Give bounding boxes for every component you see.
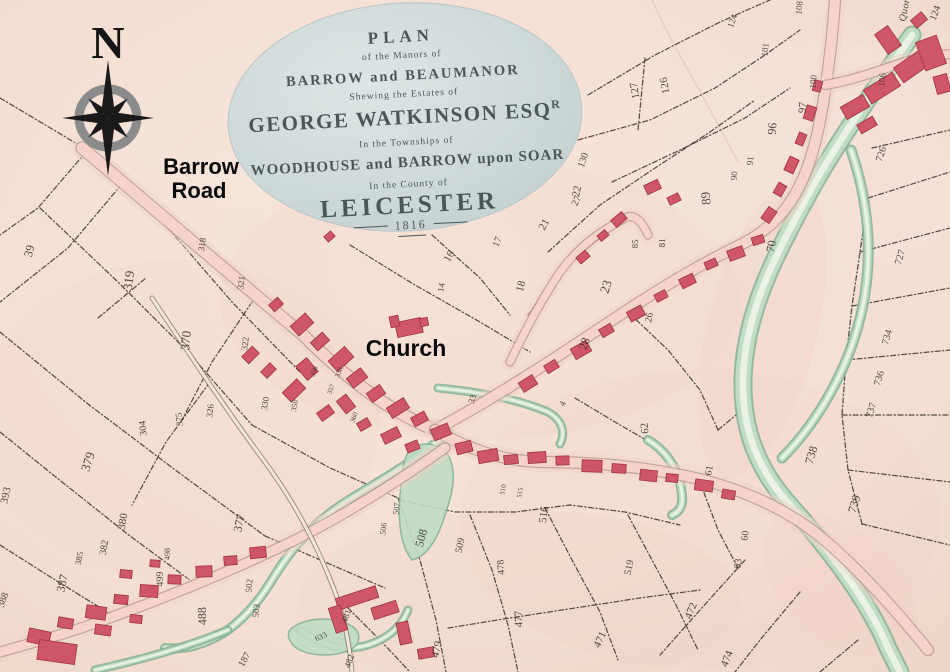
parcel-number: 506 xyxy=(378,522,388,535)
owner-suffix: R xyxy=(551,97,562,112)
building xyxy=(150,560,160,568)
building xyxy=(419,317,428,326)
building xyxy=(85,605,107,621)
building xyxy=(130,614,143,623)
parcel-number: 89 xyxy=(697,191,713,205)
parcel-number: 81 xyxy=(657,238,667,247)
parcel-number: 304 xyxy=(137,420,149,436)
parcel-number: 319 xyxy=(120,270,137,291)
parcel-number: 101 xyxy=(759,43,770,57)
parcel-number: 477 xyxy=(513,610,526,627)
building xyxy=(582,460,602,473)
parcel-number: 502 xyxy=(243,579,254,593)
north-label: N xyxy=(91,17,124,68)
parcel-number: 503 xyxy=(250,603,261,618)
building xyxy=(389,315,400,328)
building xyxy=(114,594,129,604)
parcel-number: 90 xyxy=(729,170,740,180)
parcel-number: 96 xyxy=(765,122,780,135)
parcel-number: 106 xyxy=(876,72,887,87)
estate-map-1816: 3931931837032130437532232633037939338838… xyxy=(0,0,950,672)
parcel-number: 499 xyxy=(155,571,167,586)
parcel-number: 375 xyxy=(173,412,184,427)
building xyxy=(94,624,111,636)
map-viewport: 3931931837032130437532232633037939338838… xyxy=(0,0,950,672)
parcel-number: 498 xyxy=(163,548,172,560)
building xyxy=(168,575,181,584)
building xyxy=(694,479,713,492)
building xyxy=(556,456,569,465)
building xyxy=(666,473,679,482)
building xyxy=(57,617,74,629)
building xyxy=(249,546,266,559)
parcel-number: 97 xyxy=(797,101,810,114)
parcel-number: 507 xyxy=(391,502,401,515)
parcel-number: 61 xyxy=(703,465,716,477)
parcel-number: 70 xyxy=(763,239,779,253)
building xyxy=(612,464,627,474)
building xyxy=(721,489,735,500)
parcel-number: 321 xyxy=(235,275,247,290)
parcel-number: 26 xyxy=(643,312,656,324)
barrow-road-label-line2: Road xyxy=(172,178,227,203)
parcel-number: 108 xyxy=(793,0,804,15)
building xyxy=(224,556,238,566)
cartouche-year: 1816 xyxy=(394,217,427,233)
building xyxy=(120,569,133,578)
parcel-number: 478 xyxy=(495,559,507,575)
parcel-number: 60 xyxy=(739,530,751,541)
parcel-number: 85 xyxy=(630,239,640,249)
building xyxy=(504,454,519,464)
building xyxy=(528,451,547,463)
church-label: Church xyxy=(366,335,447,361)
cartouche-plan: PLAN xyxy=(367,25,434,47)
parcel-number: 91 xyxy=(745,156,756,166)
parcel-number: 63 xyxy=(732,558,744,569)
parcel-number: 326 xyxy=(204,403,215,418)
barrow-road-label-line1: Barrow xyxy=(163,154,240,179)
parcel-number: 370 xyxy=(177,330,194,351)
parcel-number: 516 xyxy=(537,505,551,523)
parcel-number: 488 xyxy=(195,607,210,625)
parcel-number: 100 xyxy=(807,74,818,89)
parcel-number: 322 xyxy=(239,336,251,351)
building xyxy=(639,469,657,482)
building xyxy=(196,566,212,578)
parcel-number: 62 xyxy=(639,422,652,434)
